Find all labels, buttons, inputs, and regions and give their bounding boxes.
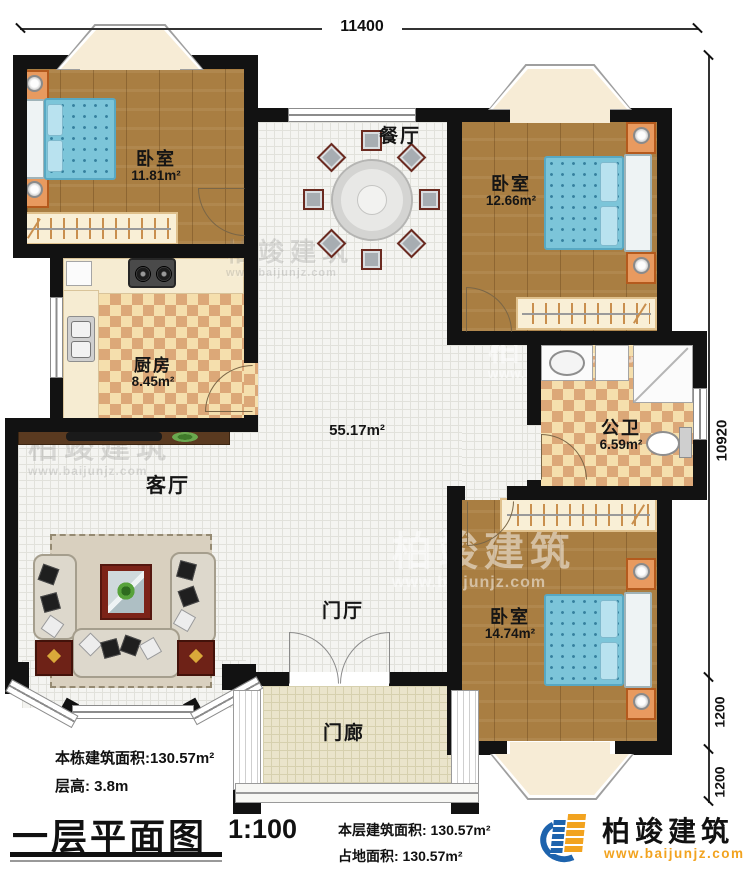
bath-door-floor [527,425,541,480]
wall [5,418,245,432]
dining-chair [361,249,382,270]
wall [447,108,462,345]
plant-icon [115,580,137,602]
hall-area-label: 55.17m² [312,423,402,439]
tv-icon [66,432,162,441]
fridge [66,261,92,286]
end-table [177,640,215,676]
bay-opening [510,109,610,123]
window [50,297,63,378]
dimension-right-label: 10920 [702,408,742,472]
window [288,108,416,122]
room-label-bedroom1: 卧室 11.81m² [106,150,206,184]
wall [50,378,63,422]
porch-step [235,793,479,803]
room-label-bedroom3: 卧室 14.74m² [460,608,560,642]
dimension-bay-b-value: 1200 [712,766,728,797]
room-label-bedroom2: 卧室 12.66m² [461,175,561,209]
room-name: 厨房 [103,357,203,375]
room-label-living: 客厅 [136,476,200,498]
room-name: 公卫 [571,419,671,438]
dining-chair [419,189,440,210]
wardrobe [516,297,657,330]
room-name: 门厅 [311,602,375,623]
toilet-tank [679,427,692,458]
dimension-bay-b-label: 1200 [702,756,738,808]
room-area: 11.81m² [106,169,206,184]
wall [244,55,258,363]
star-icon [189,649,203,663]
shower [633,345,693,403]
lamp-icon [633,127,650,144]
lamp-icon [633,693,650,710]
bed-headboard [624,592,652,688]
bed-pillow [47,104,63,136]
drawing-scale: 1:100 [228,814,297,845]
nightstand [626,558,656,590]
room-name: 卧室 [461,175,561,194]
note-floor-height: 层高: 3.8m [55,775,128,796]
bed-pillow [600,206,618,246]
end-table [35,640,73,676]
nightstand [626,252,656,284]
dimension-top-label: 11400 [322,18,402,36]
wall [13,244,258,258]
room-label-dining: 餐厅 [368,127,432,148]
room-area: 8.45m² [103,375,203,390]
brand-logo-icon [538,808,598,866]
wall [13,55,27,258]
bed-headboard [624,154,652,252]
porch-step [235,783,479,793]
star-icon [47,649,61,663]
room-area: 14.74m² [460,627,560,642]
room-label-bath: 公卫 6.59m² [571,419,671,453]
plant-icon [172,432,198,442]
wall [507,486,672,500]
dining-table-center [357,185,387,215]
bed-pillow [600,600,618,638]
room-area: 12.66m² [461,194,561,209]
burner-icon [135,266,151,282]
bay-window-seat [495,754,629,795]
wall [389,672,462,686]
wardrobe-rod [522,313,651,315]
room-name: 卧室 [106,150,206,169]
dimension-right-value: 10920 [714,419,731,461]
wall [615,741,672,755]
dimension-bay-a-value: 1200 [712,696,728,727]
note-building-area: 本栋建筑面积:130.57m² [55,747,214,768]
room-name: 客厅 [136,476,200,498]
note-floor-area: 本层建筑面积: 130.57m² [338,820,490,840]
porch-column [451,690,479,790]
sink-icon [549,350,585,376]
wall [657,108,672,345]
title-underline [10,852,222,857]
room-label-kitchen: 厨房 8.45m² [103,357,203,390]
brand-url: www.baijunjz.com [604,846,745,861]
burner-icon [156,266,172,282]
sink-basin [71,341,91,358]
hall-area-value: 55.17m² [312,423,402,439]
room-name: 卧室 [460,608,560,627]
wall [657,486,672,755]
bay-opening [80,56,180,70]
wall [50,258,63,297]
shower-glass [633,347,688,402]
bed-pillow [47,140,63,172]
wardrobe-rod [27,228,172,230]
room-label-porch: 门廊 [312,724,376,745]
title-underline-thin [10,860,222,862]
floorplan-canvas: 柏竣建筑 www.baijunjz.com 柏竣建筑 www.baijunjz.… [0,0,750,878]
wall [258,108,288,122]
dimension-bay-a-label: 1200 [702,686,738,738]
note-ground-area: 占地面积: 130.57m² [338,846,462,866]
lamp-icon [633,563,650,580]
nightstand [626,688,656,720]
porch-column [233,690,261,790]
nightstand [626,122,656,154]
wardrobe [20,212,178,245]
room-label-foyer: 门厅 [311,602,375,623]
dining-chair [303,189,324,210]
vanity-cabinet [595,345,629,381]
bay-window-seat [493,69,627,109]
wardrobe [500,498,657,532]
bay-opening [510,742,610,756]
wall [693,331,707,388]
brand-name: 柏竣建筑 [602,810,734,850]
wall [244,415,258,432]
wall [527,331,541,425]
bay-window-pane [72,705,194,719]
sink-basin [71,321,91,338]
stove [128,258,176,288]
bed-pillow [600,162,618,202]
brand-logo: 柏竣建筑 www.baijunjz.com [536,804,746,872]
kitchen-sink [67,316,95,362]
bed-pillow [600,642,618,680]
room-name: 餐厅 [368,127,432,148]
wall [527,331,707,345]
lamp-icon [26,181,43,198]
lamp-icon [26,75,43,92]
room-area: 6.59m² [571,438,671,453]
wall [5,418,18,668]
wardrobe-rod [507,514,651,516]
room-name: 门廊 [312,724,376,745]
lamp-icon [633,257,650,274]
